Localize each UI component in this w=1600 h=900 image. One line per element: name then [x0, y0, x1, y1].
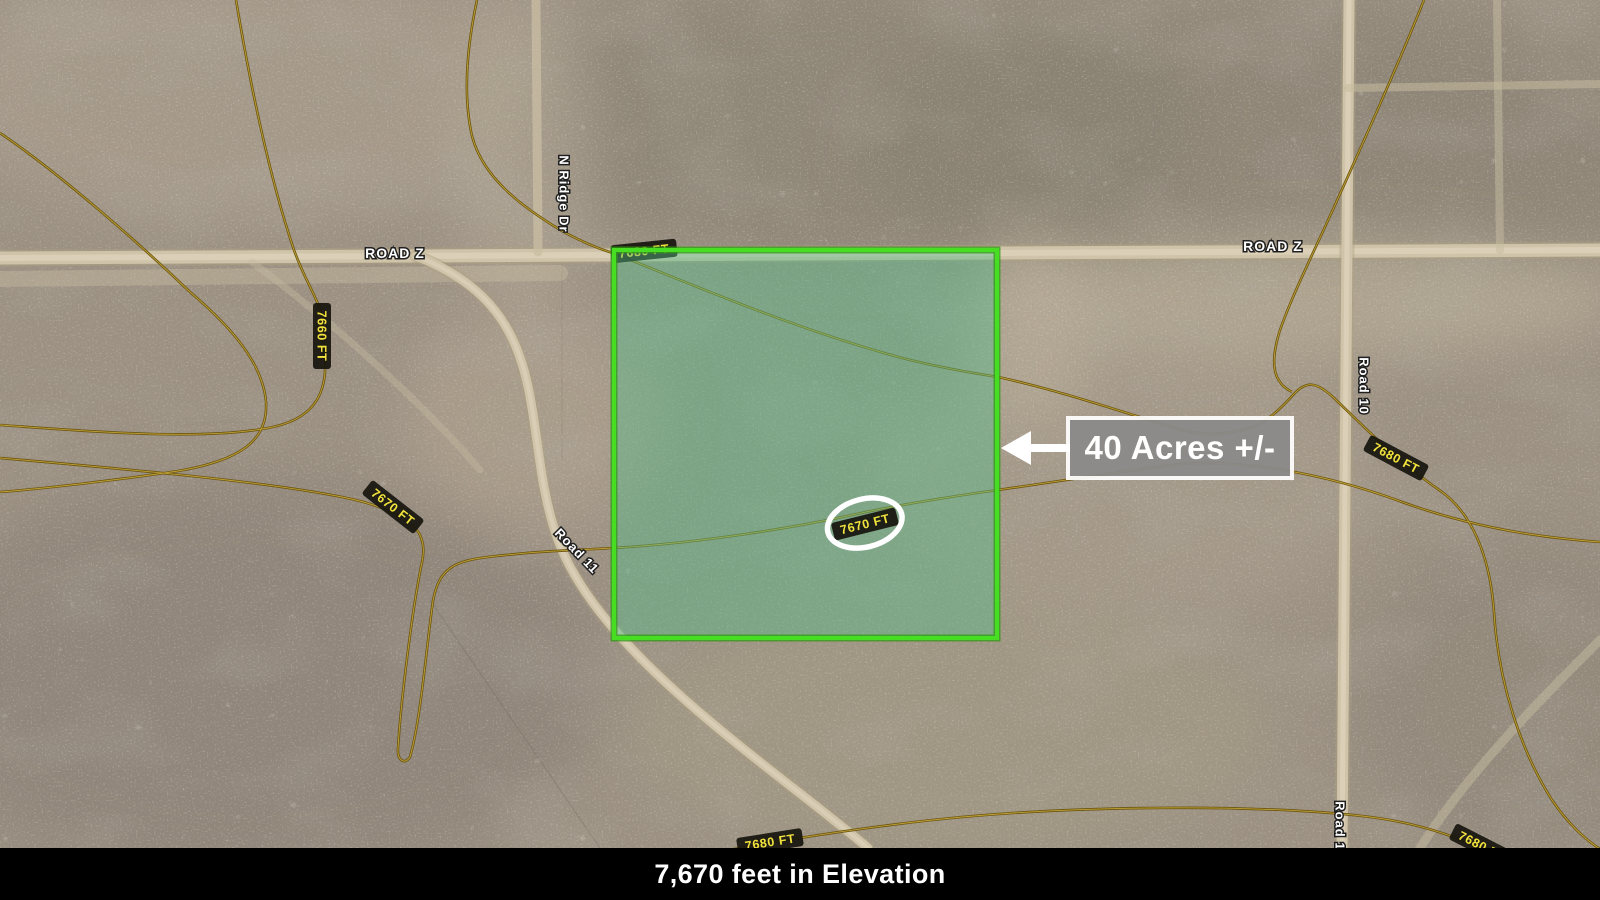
road-label: N Ridge Dr — [557, 155, 572, 232]
caption-text: 7,670 feet in Elevation — [654, 859, 945, 890]
road-label: ROAD Z — [365, 245, 425, 261]
contour-label: 7660 FT — [313, 303, 331, 369]
road-label: ROAD Z — [1243, 238, 1303, 254]
svg-text:7660 FT: 7660 FT — [315, 311, 329, 362]
area-annotation-arrow-shaft — [1029, 444, 1070, 452]
caption-bar: 7,670 feet in Elevation — [0, 848, 1600, 900]
road-label: Road 10 — [1357, 357, 1372, 415]
land-listing-map-screenshot: 7680 FT 7660 FT 7670 FT 7680 FT 7680 FT … — [0, 0, 1600, 900]
satellite-map: 7680 FT 7660 FT 7670 FT 7680 FT 7680 FT … — [0, 0, 1600, 848]
area-annotation-label: 40 Acres +/- — [1085, 429, 1276, 466]
parcel-boundary — [614, 250, 997, 638]
road-label: Road 10 — [1333, 801, 1348, 848]
